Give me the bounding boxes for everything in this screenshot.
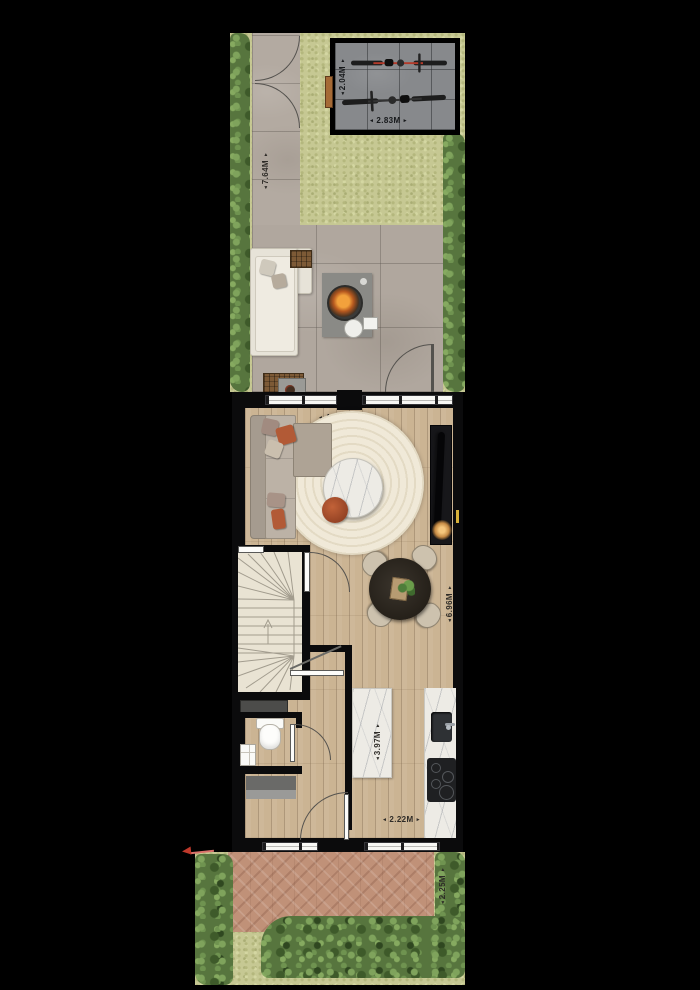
dimension-label-kitchen-depth: ▲ 3.97M ▼ bbox=[372, 724, 384, 762]
patio-door-leaf bbox=[431, 344, 434, 392]
light-switch bbox=[456, 510, 459, 523]
rear-window-left bbox=[265, 395, 337, 405]
interior-door-leaf bbox=[238, 546, 264, 553]
tv-icon bbox=[434, 432, 445, 528]
house: ◄ 4.50M ► ▲ 2.82M ▼ bbox=[232, 392, 463, 852]
side-table bbox=[344, 319, 363, 338]
arrow-left-icon: ◄ bbox=[382, 818, 387, 823]
sofa-pillow bbox=[266, 492, 285, 508]
arrow-down-icon: ▼ bbox=[263, 186, 268, 191]
toilet-bowl bbox=[259, 724, 281, 750]
tv-cabinet bbox=[430, 425, 452, 545]
washbasin-icon bbox=[240, 744, 256, 766]
floor-lamp bbox=[432, 520, 452, 540]
shed-door bbox=[325, 76, 333, 108]
arrow-down-icon: ▼ bbox=[447, 619, 452, 624]
burner bbox=[431, 763, 441, 773]
rear-door-block bbox=[337, 390, 362, 410]
arrow-up-icon: ▲ bbox=[447, 586, 452, 591]
hedge-right-back bbox=[443, 133, 465, 392]
front-door-leaf bbox=[344, 794, 349, 840]
fire-pit bbox=[327, 285, 363, 321]
dimension-label-kitchen-window: ◄ 2.22M ► bbox=[382, 816, 421, 824]
arrow-up-icon: ▲ bbox=[263, 153, 268, 158]
doormat bbox=[246, 790, 296, 799]
serving-tray bbox=[363, 317, 378, 330]
bicycle-icon bbox=[340, 84, 447, 116]
arrow-right-icon: ► bbox=[416, 818, 421, 823]
dimension-label-front-garden: ▲ 2.25M ▼ bbox=[437, 868, 449, 906]
arrow-right-icon: ► bbox=[403, 119, 408, 124]
front-window-right bbox=[364, 842, 440, 851]
hedge-left-front bbox=[195, 854, 233, 985]
dimension-label-shed-depth: ▲ 2.04M ▼ bbox=[337, 59, 349, 97]
pouf bbox=[322, 497, 348, 523]
rear-window-right bbox=[362, 395, 453, 405]
hedge-left-back bbox=[230, 33, 250, 392]
interior-door-leaf bbox=[290, 670, 344, 676]
kitchen-counter bbox=[424, 688, 456, 838]
arrow-down-icon: ▼ bbox=[440, 901, 445, 906]
bike-shed: ▲ 2.04M ▼ ◄ 2.83M ► bbox=[330, 38, 460, 135]
sofa-pillow bbox=[271, 273, 288, 290]
doormat bbox=[246, 776, 296, 790]
faucet-base bbox=[446, 725, 451, 730]
floor-plan-canvas: ▲ 2.04M ▼ ◄ 2.83M ► ▲ 7.64M ▼ bbox=[0, 0, 700, 990]
burner bbox=[439, 785, 454, 800]
back-garden: ▲ 2.04M ▼ ◄ 2.83M ► ▲ 7.64M ▼ bbox=[230, 33, 465, 392]
hedge-bottom-front bbox=[261, 916, 465, 978]
dimension-label-open-plan-depth: ▲ 6.96M ▼ bbox=[444, 586, 456, 624]
burner bbox=[442, 771, 454, 783]
arrow-left-icon: ◄ bbox=[369, 119, 374, 124]
outdoor-armrest-table bbox=[290, 250, 312, 268]
arrow-down-icon: ▼ bbox=[375, 757, 380, 762]
front-window-left bbox=[262, 842, 318, 851]
arrow-up-icon: ▲ bbox=[440, 868, 445, 873]
arrow-up-icon: ▲ bbox=[340, 59, 345, 64]
plant-icon bbox=[397, 580, 415, 596]
sink-icon bbox=[431, 712, 452, 742]
staircase bbox=[238, 545, 310, 700]
dimension-label-back-garden: ▲ 7.64M ▼ bbox=[260, 153, 272, 191]
north-arrow-icon bbox=[182, 845, 216, 859]
sofa-pillow bbox=[271, 508, 287, 530]
arrow-down-icon: ▼ bbox=[340, 92, 345, 97]
bicycle-icon bbox=[349, 51, 449, 75]
sofa-chaise bbox=[293, 423, 332, 477]
dimension-label-shed-width: ◄ 2.83M ► bbox=[369, 117, 408, 125]
arrow-up-icon: ▲ bbox=[375, 724, 380, 729]
dining-table bbox=[369, 558, 431, 620]
cooktop-icon bbox=[427, 758, 456, 802]
indoor-sofa bbox=[250, 415, 330, 545]
front-garden: ▲ 2.25M ▼ bbox=[195, 852, 465, 985]
toilet-wall-bottom bbox=[238, 766, 302, 774]
lantern-icon bbox=[359, 277, 368, 286]
